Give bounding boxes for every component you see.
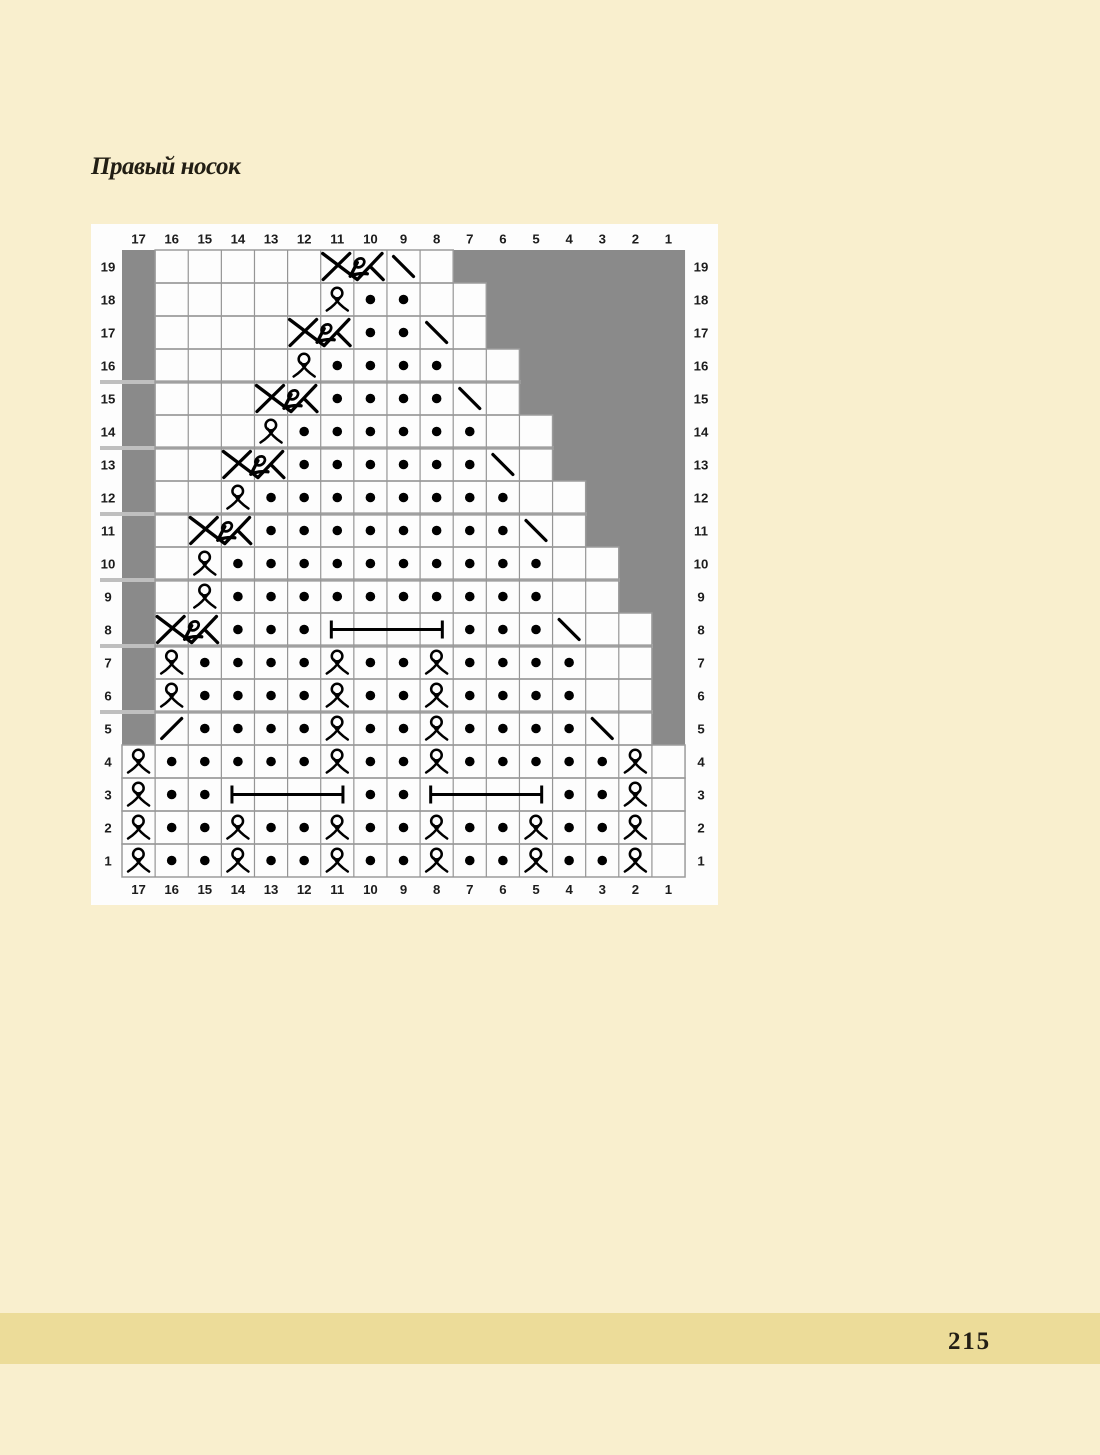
svg-text:3: 3 (599, 231, 606, 246)
svg-text:3: 3 (104, 788, 111, 803)
svg-text:9: 9 (400, 231, 407, 246)
svg-text:11: 11 (330, 882, 344, 897)
svg-text:7: 7 (697, 656, 704, 671)
svg-text:12: 12 (694, 491, 709, 506)
svg-text:14: 14 (231, 882, 246, 897)
svg-text:5: 5 (532, 882, 539, 897)
svg-text:11: 11 (101, 524, 115, 539)
svg-text:9: 9 (104, 590, 111, 605)
svg-text:10: 10 (694, 557, 709, 572)
svg-text:5: 5 (532, 231, 539, 246)
svg-text:7: 7 (104, 656, 111, 671)
svg-text:8: 8 (104, 623, 111, 638)
svg-text:3: 3 (599, 882, 606, 897)
svg-text:8: 8 (697, 623, 704, 638)
svg-text:19: 19 (694, 260, 709, 275)
svg-text:11: 11 (694, 524, 708, 539)
svg-text:1: 1 (697, 854, 704, 869)
svg-text:10: 10 (101, 557, 116, 572)
svg-text:16: 16 (101, 359, 116, 374)
svg-text:11: 11 (330, 231, 344, 246)
svg-text:8: 8 (433, 231, 440, 246)
svg-text:12: 12 (101, 491, 116, 506)
svg-text:17: 17 (131, 231, 146, 246)
svg-text:7: 7 (466, 231, 473, 246)
svg-text:13: 13 (264, 882, 279, 897)
svg-text:12: 12 (297, 231, 312, 246)
svg-text:18: 18 (694, 293, 709, 308)
svg-text:6: 6 (499, 882, 506, 897)
svg-text:10: 10 (363, 882, 378, 897)
svg-text:17: 17 (131, 882, 146, 897)
svg-text:14: 14 (231, 231, 246, 246)
svg-text:1: 1 (665, 882, 672, 897)
svg-text:12: 12 (297, 882, 312, 897)
svg-text:2: 2 (632, 882, 639, 897)
svg-text:15: 15 (101, 392, 116, 407)
svg-text:8: 8 (433, 882, 440, 897)
svg-text:6: 6 (697, 689, 704, 704)
svg-text:17: 17 (101, 326, 116, 341)
svg-text:2: 2 (697, 821, 704, 836)
svg-text:14: 14 (694, 425, 709, 440)
svg-text:9: 9 (400, 882, 407, 897)
svg-text:6: 6 (499, 231, 506, 246)
svg-text:19: 19 (101, 260, 116, 275)
svg-text:2: 2 (632, 231, 639, 246)
svg-text:4: 4 (565, 231, 573, 246)
svg-text:1: 1 (665, 231, 672, 246)
svg-text:13: 13 (264, 231, 279, 246)
svg-text:15: 15 (197, 231, 212, 246)
svg-text:7: 7 (466, 882, 473, 897)
svg-text:9: 9 (697, 590, 704, 605)
svg-text:16: 16 (164, 882, 179, 897)
svg-text:3: 3 (697, 788, 704, 803)
svg-text:6: 6 (104, 689, 111, 704)
svg-text:13: 13 (101, 458, 116, 473)
svg-text:16: 16 (164, 231, 179, 246)
svg-text:15: 15 (197, 882, 212, 897)
svg-text:2: 2 (104, 821, 111, 836)
svg-text:5: 5 (104, 722, 111, 737)
svg-text:18: 18 (101, 293, 116, 308)
svg-text:17: 17 (694, 326, 709, 341)
svg-text:10: 10 (363, 231, 378, 246)
svg-text:4: 4 (565, 882, 573, 897)
svg-text:14: 14 (101, 425, 116, 440)
svg-text:1: 1 (104, 854, 111, 869)
svg-text:15: 15 (694, 392, 709, 407)
svg-text:4: 4 (104, 755, 112, 770)
svg-text:5: 5 (697, 722, 704, 737)
svg-text:16: 16 (694, 359, 709, 374)
svg-text:4: 4 (697, 755, 705, 770)
svg-text:13: 13 (694, 458, 709, 473)
